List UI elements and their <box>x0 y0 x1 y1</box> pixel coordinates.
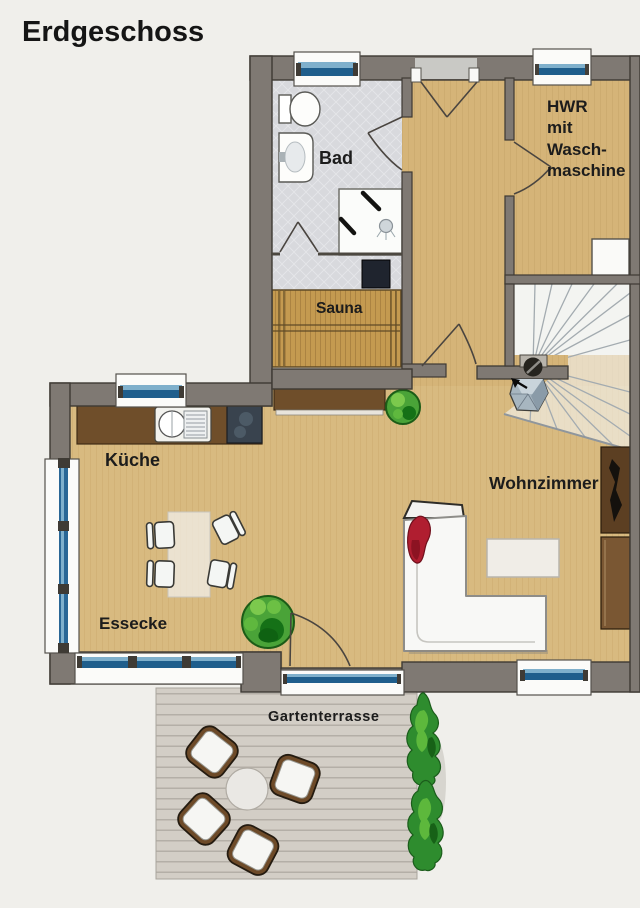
svg-text:Sauna: Sauna <box>316 300 363 317</box>
svg-text:Essecke: Essecke <box>99 614 167 633</box>
svg-text:Erdgeschoss: Erdgeschoss <box>22 16 204 48</box>
svg-text:Wasch-: Wasch- <box>547 140 607 159</box>
svg-text:Bad: Bad <box>319 148 353 168</box>
svg-text:maschine: maschine <box>547 161 625 180</box>
svg-text:Gartenterrasse: Gartenterrasse <box>268 709 380 725</box>
svg-text:Küche: Küche <box>105 450 160 470</box>
svg-text:HWR: HWR <box>547 97 588 116</box>
svg-text:mit: mit <box>547 118 573 137</box>
svg-text:Wohnzimmer: Wohnzimmer <box>489 473 599 493</box>
